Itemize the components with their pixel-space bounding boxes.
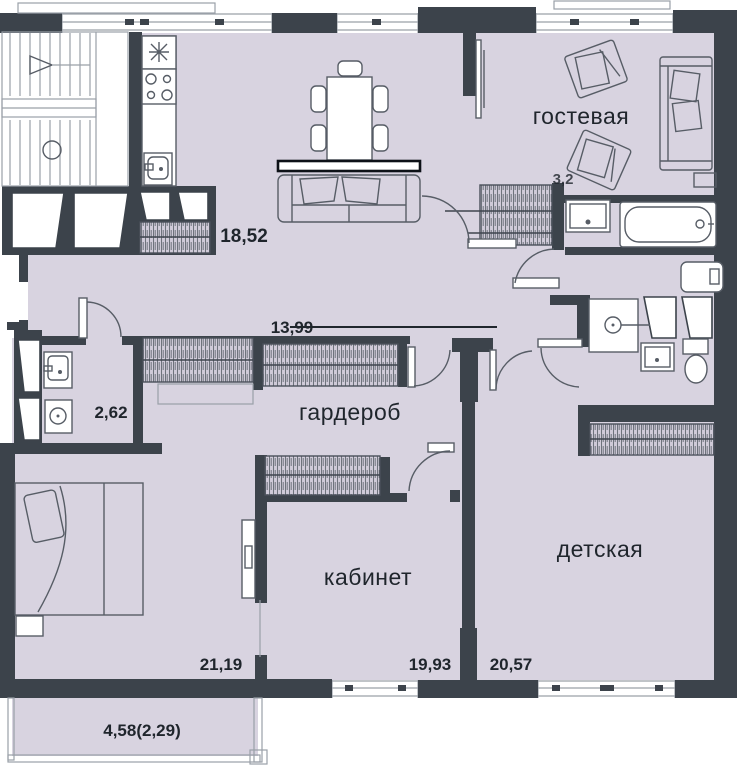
guest-sofa xyxy=(660,57,712,170)
bedroom-furniture xyxy=(15,483,143,636)
window xyxy=(332,680,418,698)
dining-table xyxy=(327,77,372,160)
exterior-outline xyxy=(18,1,670,13)
bath-sink-icon xyxy=(566,200,610,232)
tv-console xyxy=(278,161,420,171)
chair xyxy=(338,61,362,76)
kitchen-units xyxy=(142,36,176,186)
bed xyxy=(15,483,143,615)
wardrobe-unit xyxy=(265,456,380,495)
wardrobe-unit xyxy=(263,344,398,386)
wardrobe-unit xyxy=(140,222,210,253)
window xyxy=(536,13,673,33)
floor-plan: 18,52 гостевая 3,2 13,99 2,62 гардероб к… xyxy=(0,0,737,768)
wardrobe-unit xyxy=(590,424,714,455)
kids-area-label: 20,57 xyxy=(490,655,533,674)
wardrobe-unit xyxy=(143,338,253,382)
wardrobe-room-label: гардероб xyxy=(299,399,401,425)
living-kitchen-area-label: 18,52 xyxy=(220,226,268,247)
nightstand xyxy=(16,616,43,636)
bedroom-area-label: 21,19 xyxy=(200,655,243,674)
laundry-area-label: 2,62 xyxy=(94,403,127,422)
floor-plan-drawing: 18,52 гостевая 3,2 13,99 2,62 гардероб к… xyxy=(0,0,737,768)
toilet-icon xyxy=(683,339,708,354)
chair xyxy=(373,125,388,151)
guest-room-label: гостевая xyxy=(533,103,629,129)
study-area-label: 19,93 xyxy=(409,655,452,674)
bathtub-icon xyxy=(620,202,716,247)
chair xyxy=(373,86,388,112)
study-room-label: кабинет xyxy=(324,564,412,590)
chair xyxy=(311,86,326,112)
balcony-area-label: 4,58(2,29) xyxy=(103,721,181,740)
kids-room-label: детская xyxy=(557,536,644,562)
window xyxy=(337,13,418,33)
living-sofa xyxy=(278,175,420,222)
hallway-area-label: 13,99 xyxy=(271,318,314,337)
washing-machine-icon xyxy=(681,262,723,292)
chair xyxy=(311,125,326,151)
window xyxy=(538,680,675,698)
window xyxy=(62,13,272,33)
bathroom-area-label: 3,2 xyxy=(553,171,574,188)
